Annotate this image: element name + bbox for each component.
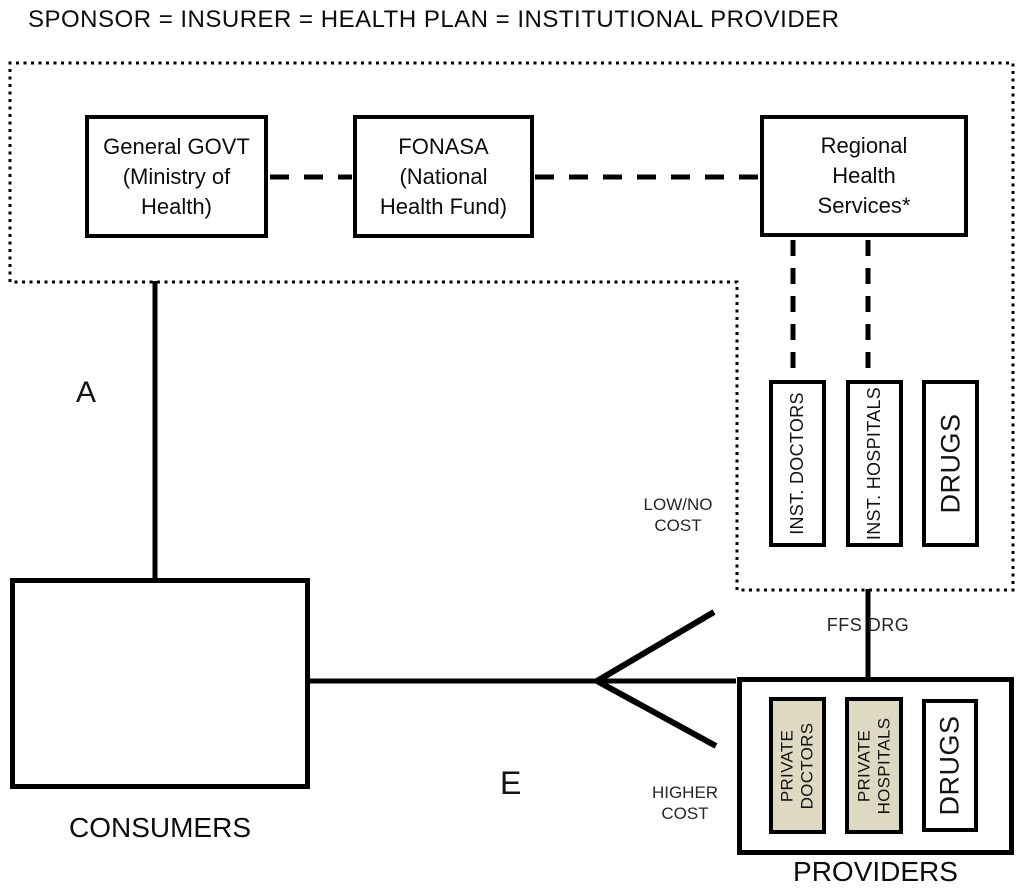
box-private-hospitals-label: PRIVATE HOSPITALS (854, 717, 894, 814)
box-fonasa: FONASA (National Health Fund) (353, 115, 534, 238)
diagram-title: SPONSOR = INSURER = HEALTH PLAN = INSTIT… (28, 6, 840, 34)
link-consumers-fork-upper (597, 612, 714, 681)
box-general-govt: General GOVT (Ministry of Health) (85, 115, 268, 238)
box-private-doctors-label: PRIVATE DOCTORS (778, 722, 818, 809)
diagram-canvas: SPONSOR = INSURER = HEALTH PLAN = INSTIT… (0, 0, 1024, 890)
consumers-label: CONSUMERS (10, 812, 310, 844)
box-private-drugs: DRUGS (922, 699, 978, 832)
box-private-drugs-label: DRUGS (940, 715, 961, 815)
box-inst-hospitals: INST. HOSPITALS (846, 380, 903, 547)
providers-label: PROVIDERS (737, 856, 1014, 888)
box-inst-drugs: DRUGS (922, 380, 979, 547)
edge-label-e: E (500, 765, 521, 802)
box-regional-health-services: Regional Health Services* (760, 115, 968, 237)
link-consumers-fork-lower (597, 681, 716, 746)
ffs-drg-label: FFS DRG (818, 615, 918, 636)
low-no-cost-label: LOW/NO COST (628, 494, 728, 536)
box-fonasa-label: FONASA (National Health Fund) (357, 132, 530, 222)
box-inst-doctors-label: INST. DOCTORS (787, 392, 808, 535)
box-general-govt-label: General GOVT (Ministry of Health) (89, 132, 264, 222)
box-inst-doctors: INST. DOCTORS (769, 380, 826, 547)
box-inst-drugs-label: DRUGS (940, 413, 961, 513)
box-regional-health-services-label: Regional Health Services* (764, 131, 964, 221)
box-private-hospitals: PRIVATE HOSPITALS (845, 697, 903, 834)
edge-label-a: A (76, 376, 96, 410)
box-inst-hospitals-label: INST. HOSPITALS (864, 387, 885, 540)
higher-cost-label: HIGHER COST (635, 782, 735, 824)
box-consumers (10, 578, 310, 789)
box-private-doctors: PRIVATE DOCTORS (769, 697, 826, 834)
